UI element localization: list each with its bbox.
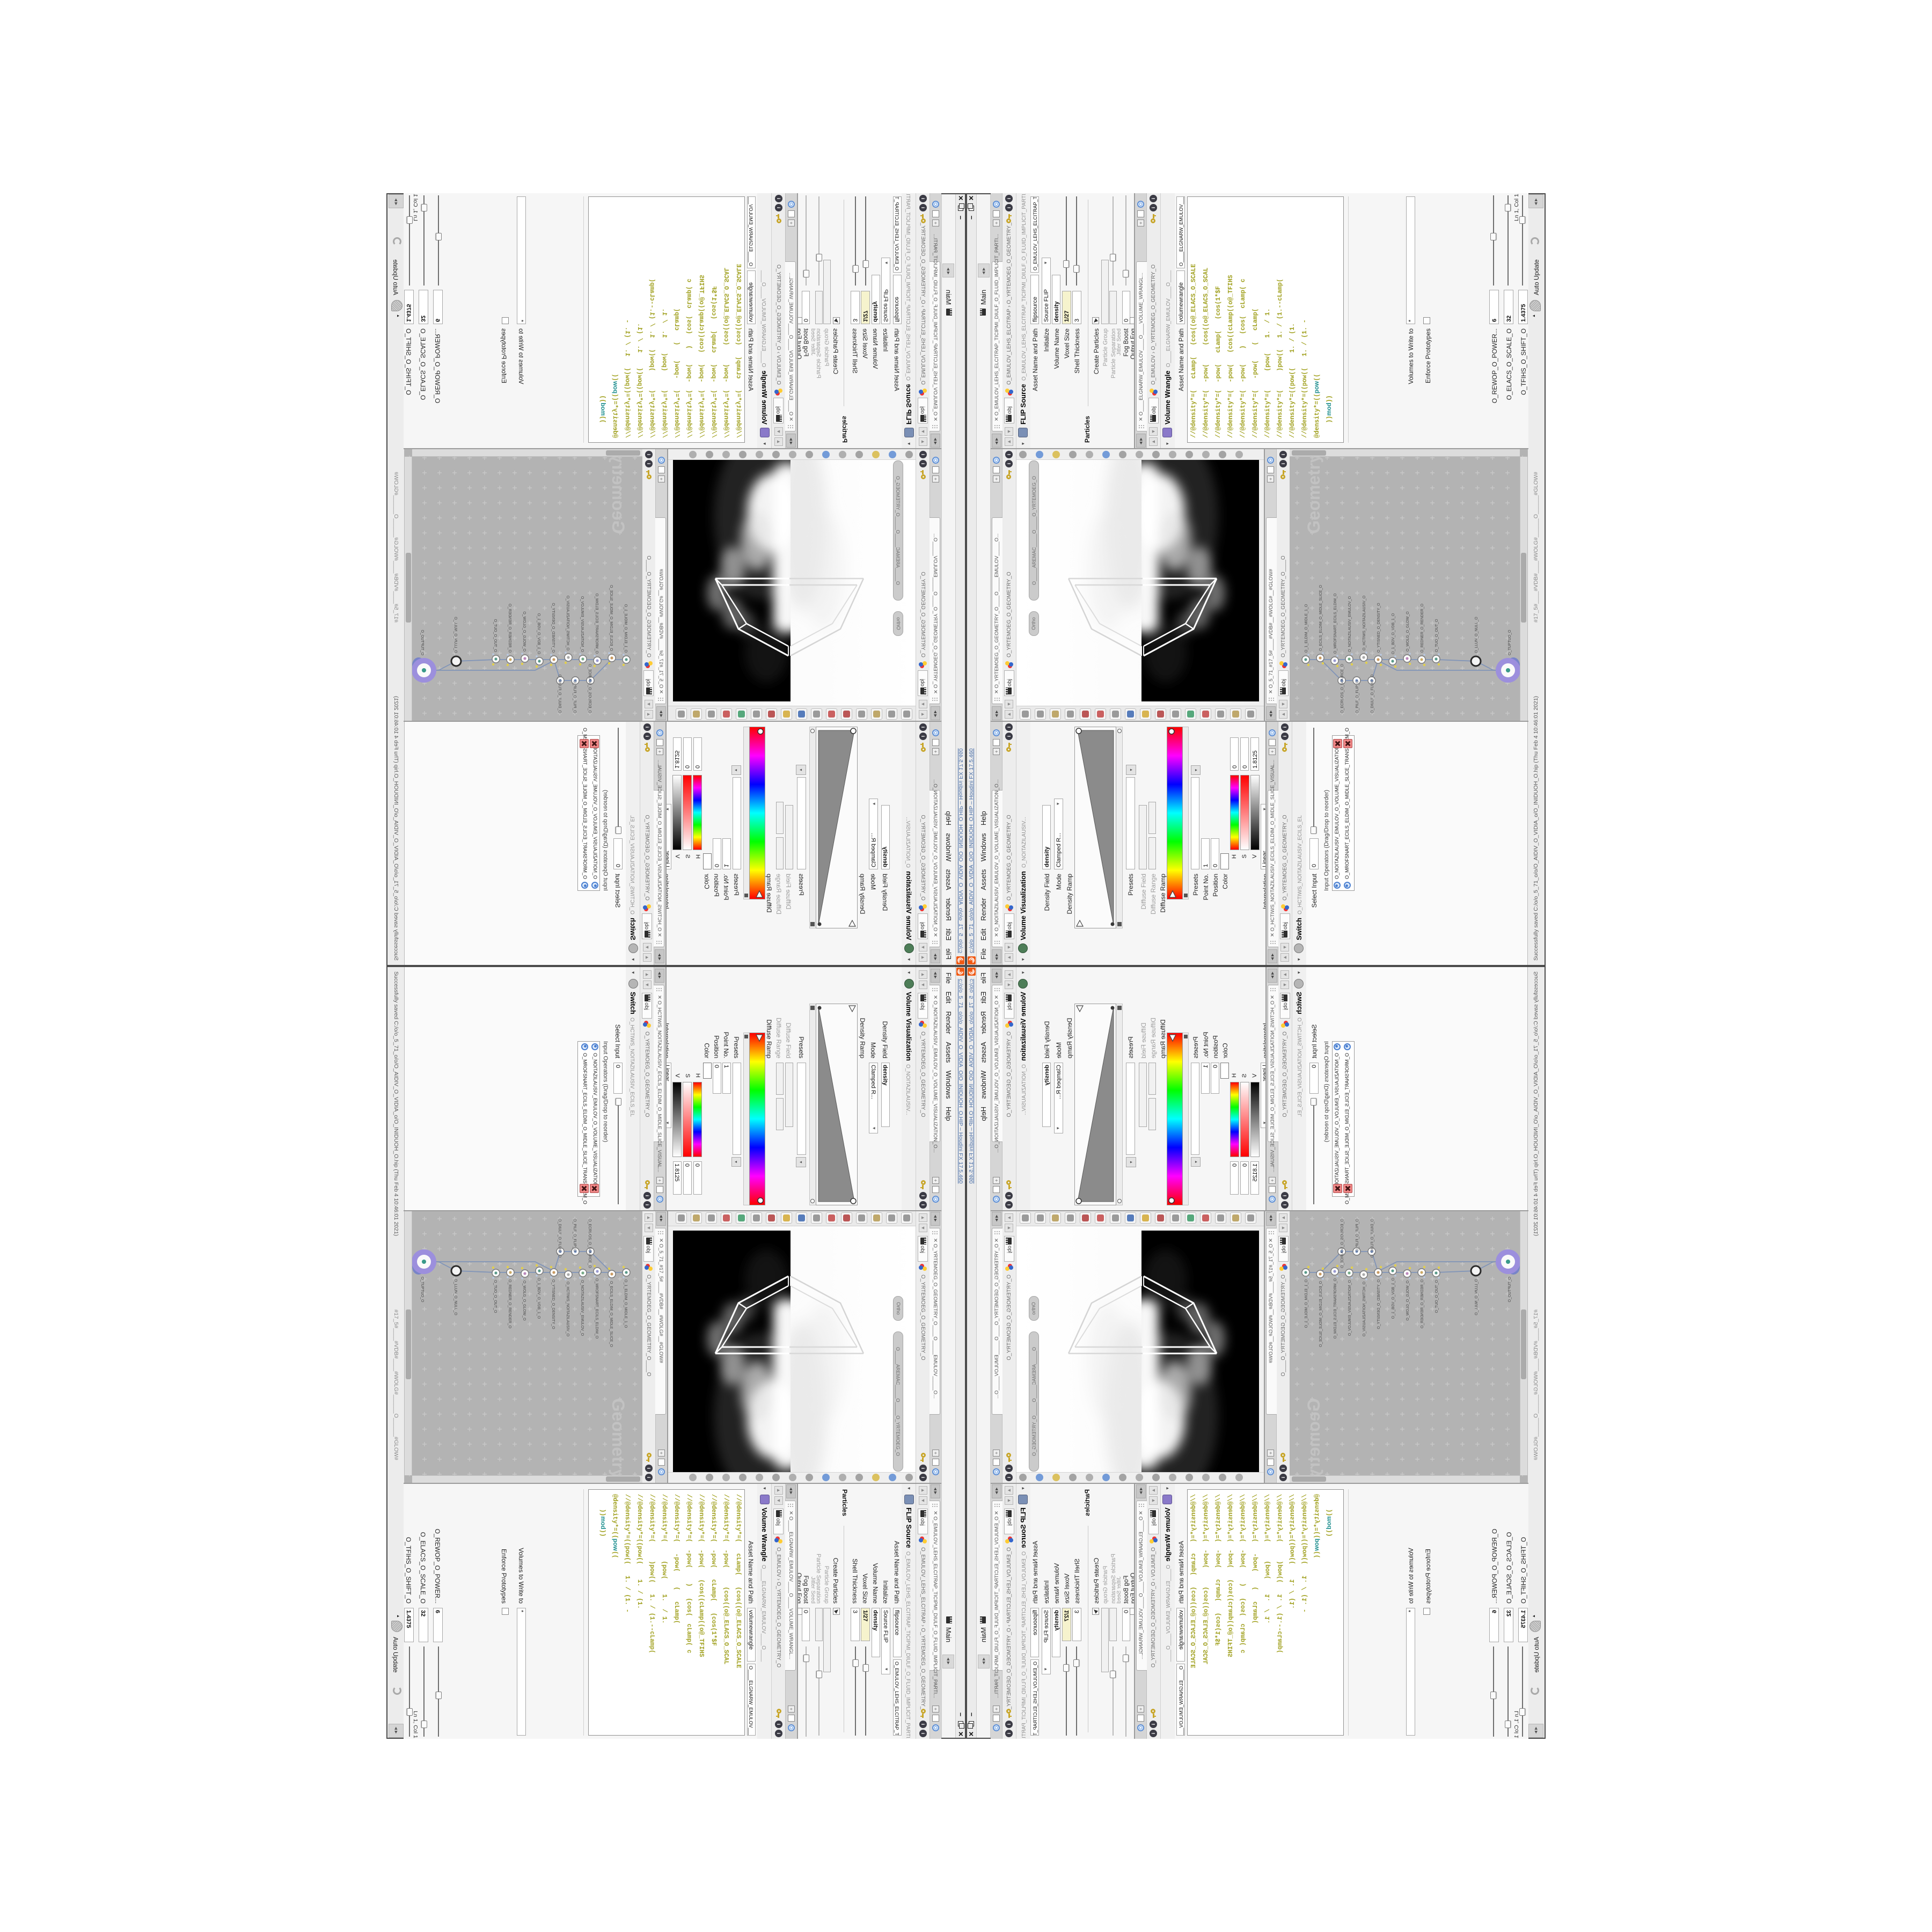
svg-text:O_MROFSNART_ECILS_ELDIM_O: O_MROFSNART_ECILS_ELDIM_O	[1334, 1278, 1337, 1339]
svg-text:O_TUO_O_OUT_O: O_TUO_O_OUT_O	[493, 619, 497, 652]
svg-text:O_HCTIWS_NOITAZILAUSIV_O: O_HCTIWS_NOITAZILAUSIV_O	[1363, 595, 1366, 650]
svg-text:O_1_BDV_O_VDB_1_O: O_1_BDV_O_VDB_1_O	[1392, 613, 1395, 654]
svg-text:O_REDNER_O_RENDER_O: O_REDNER_O_RENDER_O	[508, 603, 511, 653]
svg-text:O_WOLG_O_GLOW_O: O_WOLG_O_GLOW_O	[1406, 1280, 1410, 1321]
svg-text:O_TUO_O_OUT_O: O_TUO_O_OUT_O	[493, 1280, 497, 1313]
svg-text:O_YTISNED_O_DENSITY_O: O_YTISNED_O_DENSITY_O	[551, 603, 555, 653]
svg-text:O_ECRUOS_O_SOURCE_O: O_ECRUOS_O_SOURCE_O	[588, 1219, 591, 1268]
svg-text:O_PILF_O_FLIP_O: O_PILF_O_FLIP_O	[573, 680, 576, 713]
svg-text:O_MROFSNART_ECILS_ELDIM_O: O_MROFSNART_ECILS_ELDIM_O	[595, 593, 598, 654]
svg-text:O_PILF_O_FLIP_O: O_PILF_O_FLIP_O	[573, 1219, 576, 1252]
svg-text:O_1_BDV_O_VDB_1_O: O_1_BDV_O_VDB_1_O	[1392, 1278, 1395, 1319]
svg-text:O_NOITAZILAUSIV_EMULOV_O: O_NOITAZILAUSIV_EMULOV_O	[580, 1280, 584, 1336]
svg-text:O_ECILS_ELDIM_O_MIDLE_SLICE_O: O_ECILS_ELDIM_O_MIDLE_SLICE_O	[609, 1281, 613, 1347]
svg-text:O_TUPTUO_O: O_TUPTUO_O	[1508, 1277, 1512, 1302]
svg-text:O_YTISNED_O_DENSITY_O: O_YTISNED_O_DENSITY_O	[1377, 1279, 1381, 1329]
svg-text:O_1_ELDIM_O_MIDLE_1_O: O_1_ELDIM_O_MIDLE_1_O	[1305, 1279, 1308, 1328]
svg-text:O_PILF_O_FLIP_O: O_PILF_O_FLIP_O	[1356, 1219, 1359, 1252]
svg-text:O_DIULF_O_FLUID_O: O_DIULF_O_FLUID_O	[558, 1219, 561, 1258]
svg-text:O_REDNER_O_RENDER_O: O_REDNER_O_RENDER_O	[508, 1279, 511, 1329]
svg-text:O_WOLG_O_GLOW_O: O_WOLG_O_GLOW_O	[522, 1280, 526, 1321]
svg-text:O_DIULF_O_FLUID_O: O_DIULF_O_FLUID_O	[1371, 674, 1374, 713]
svg-text:O_TUPTUO_O: O_TUPTUO_O	[1508, 630, 1512, 655]
svg-text:O_ECRUOS_O_SOURCE_O: O_ECRUOS_O_SOURCE_O	[1341, 664, 1344, 713]
svg-text:O_REDNER_O_RENDER_O: O_REDNER_O_RENDER_O	[1421, 1279, 1424, 1329]
svg-text:O_LLUN_O_NULL_O: O_LLUN_O_NULL_O	[453, 617, 457, 653]
svg-text:O_YTISNED_O_DENSITY_O: O_YTISNED_O_DENSITY_O	[1377, 603, 1381, 653]
svg-text:O_REDNER_O_RENDER_O: O_REDNER_O_RENDER_O	[1421, 603, 1424, 653]
svg-text:O_NOITAZILAUSIV_EMULOV_O: O_NOITAZILAUSIV_EMULOV_O	[580, 596, 584, 652]
svg-text:O_1_BDV_O_VDB_1_O: O_1_BDV_O_VDB_1_O	[537, 613, 540, 654]
svg-text:Geometry: Geometry	[609, 453, 628, 534]
svg-text:O_TUO_O_OUT_O: O_TUO_O_OUT_O	[1435, 1280, 1439, 1313]
svg-text:O_1_ELDIM_O_MIDLE_1_O: O_1_ELDIM_O_MIDLE_1_O	[1305, 604, 1308, 653]
svg-text:O_ECRUOS_O_SOURCE_O: O_ECRUOS_O_SOURCE_O	[1341, 1219, 1344, 1268]
svg-text:O_1_ELDIM_O_MIDLE_1_O: O_1_ELDIM_O_MIDLE_1_O	[624, 604, 627, 653]
svg-text:Geometry: Geometry	[1304, 1399, 1323, 1479]
svg-text:O_PILF_O_FLIP_O: O_PILF_O_FLIP_O	[1356, 680, 1359, 713]
svg-text:O_TUPTUO_O: O_TUPTUO_O	[420, 630, 424, 655]
svg-text:O_1_ELDIM_O_MIDLE_1_O: O_1_ELDIM_O_MIDLE_1_O	[624, 1279, 627, 1328]
svg-text:O_NOITAZILAUSIV_EMULOV_O: O_NOITAZILAUSIV_EMULOV_O	[1348, 1280, 1352, 1336]
svg-text:Geometry: Geometry	[1304, 453, 1323, 534]
svg-text:O_HCTIWS_NOITAZILAUSIV_O: O_HCTIWS_NOITAZILAUSIV_O	[1363, 1282, 1366, 1337]
svg-text:O_HCTIWS_NOITAZILAUSIV_O: O_HCTIWS_NOITAZILAUSIV_O	[566, 1282, 569, 1337]
svg-text:Geometry: Geometry	[609, 1399, 628, 1479]
svg-text:O_WOLG_O_GLOW_O: O_WOLG_O_GLOW_O	[522, 611, 526, 652]
svg-text:O_ECILS_ELDIM_O_MIDLE_SLICE_O: O_ECILS_ELDIM_O_MIDLE_SLICE_O	[609, 585, 613, 651]
svg-text:O_YTISNED_O_DENSITY_O: O_YTISNED_O_DENSITY_O	[551, 1279, 555, 1329]
svg-text:O_ECRUOS_O_SOURCE_O: O_ECRUOS_O_SOURCE_O	[588, 664, 591, 713]
svg-text:O_TUPTUO_O: O_TUPTUO_O	[420, 1277, 424, 1302]
svg-text:O_ECILS_ELDIM_O_MIDLE_SLICE_O: O_ECILS_ELDIM_O_MIDLE_SLICE_O	[1319, 585, 1323, 651]
svg-text:O_MROFSNART_ECILS_ELDIM_O: O_MROFSNART_ECILS_ELDIM_O	[595, 1278, 598, 1339]
svg-text:O_ECILS_ELDIM_O_MIDLE_SLICE_O: O_ECILS_ELDIM_O_MIDLE_SLICE_O	[1319, 1281, 1323, 1347]
svg-text:O_LLUN_O_NULL_O: O_LLUN_O_NULL_O	[453, 1279, 457, 1315]
svg-text:O_NOITAZILAUSIV_EMULOV_O: O_NOITAZILAUSIV_EMULOV_O	[1348, 596, 1352, 652]
svg-text:O_WOLG_O_GLOW_O: O_WOLG_O_GLOW_O	[1406, 611, 1410, 652]
svg-text:O_1_BDV_O_VDB_1_O: O_1_BDV_O_VDB_1_O	[537, 1278, 540, 1319]
svg-text:O_LLUN_O_NULL_O: O_LLUN_O_NULL_O	[1475, 617, 1479, 653]
svg-text:O_DIULF_O_FLUID_O: O_DIULF_O_FLUID_O	[1371, 1219, 1374, 1258]
svg-text:O_HCTIWS_NOITAZILAUSIV_O: O_HCTIWS_NOITAZILAUSIV_O	[566, 595, 569, 650]
svg-text:O_MROFSNART_ECILS_ELDIM_O: O_MROFSNART_ECILS_ELDIM_O	[1334, 593, 1337, 654]
svg-text:O_LLUN_O_NULL_O: O_LLUN_O_NULL_O	[1475, 1279, 1479, 1315]
svg-text:O_DIULF_O_FLUID_O: O_DIULF_O_FLUID_O	[558, 674, 561, 713]
svg-text:O_TUO_O_OUT_O: O_TUO_O_OUT_O	[1435, 619, 1439, 652]
